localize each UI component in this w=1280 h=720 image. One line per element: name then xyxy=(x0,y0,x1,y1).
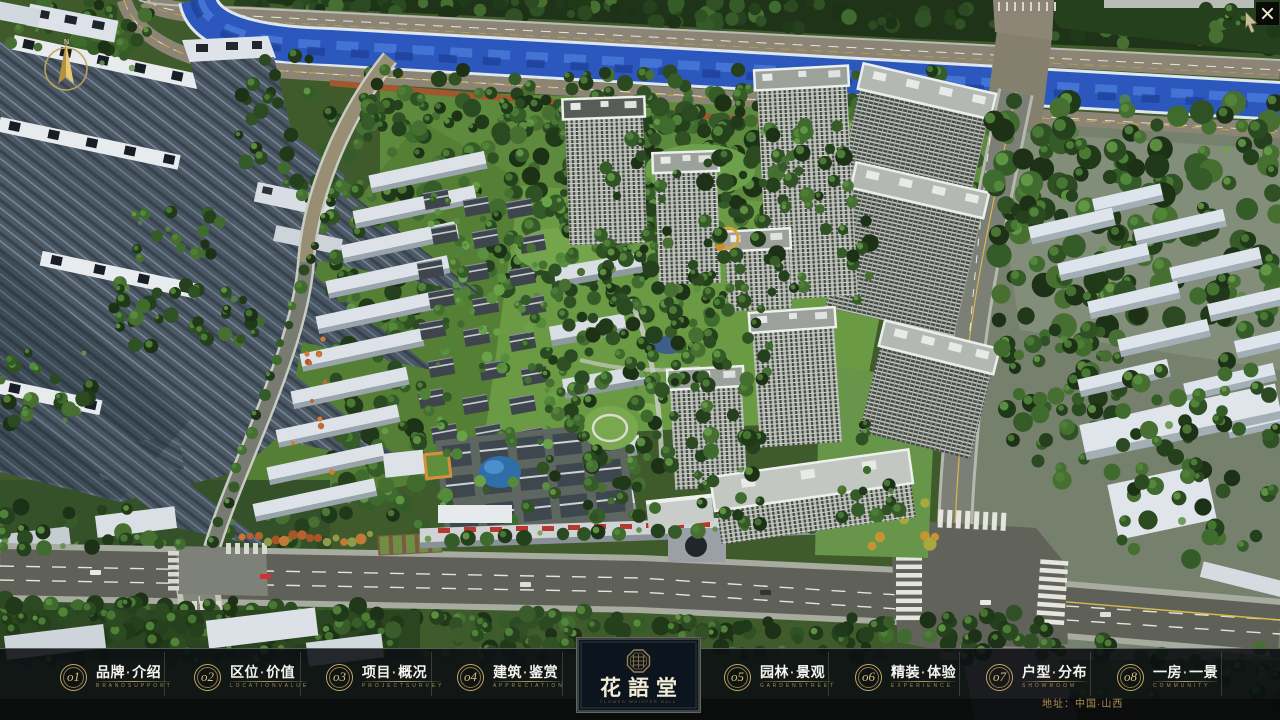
svg-text:N: N xyxy=(64,39,69,46)
